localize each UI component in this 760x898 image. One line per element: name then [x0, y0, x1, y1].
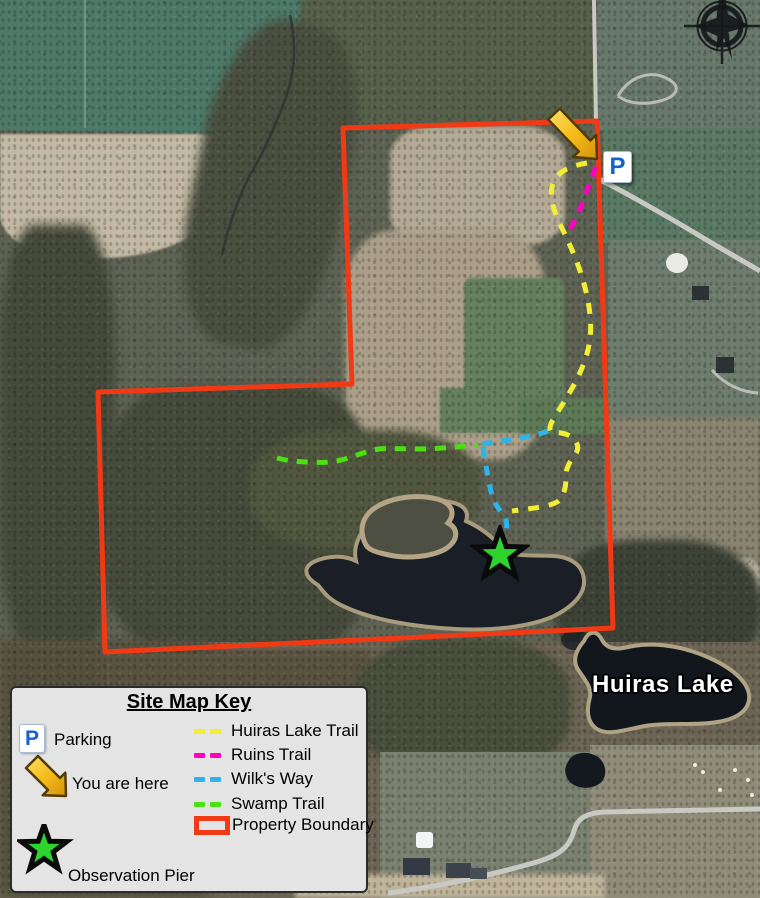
building: [470, 868, 487, 879]
creek-line: [222, 15, 294, 255]
trail-label: Wilk's Way: [231, 769, 313, 789]
legend-title: Site Map Key: [12, 691, 366, 714]
pool: [416, 832, 433, 848]
trail-wilks-way-upper: [478, 431, 548, 445]
boundary-label: Property Boundary: [232, 815, 374, 835]
parking-letter: P: [609, 153, 625, 181]
parking-icon: P: [603, 151, 632, 183]
arrow-shape: [548, 109, 597, 160]
dash: [194, 753, 205, 758]
boundary-swatch: [194, 816, 230, 835]
road-north: [594, 0, 596, 121]
legend-row-wilks-way: Wilk's Way: [194, 769, 313, 789]
farm-pond: [666, 253, 688, 273]
you-are-here-arrow-icon: [540, 104, 604, 166]
trail-label: Ruins Trail: [231, 745, 311, 765]
trail-swatch: [194, 777, 221, 782]
legend-panel: Site Map Key P Parking You are here Obse…: [10, 686, 368, 893]
dash: [210, 777, 221, 782]
lake-name-label: Huiras Lake: [592, 671, 734, 699]
building: [692, 286, 709, 300]
building: [446, 863, 471, 878]
dash: [194, 802, 205, 807]
legend-row-ruins-trail: Ruins Trail: [194, 745, 311, 765]
trail-label: Swamp Trail: [231, 794, 325, 814]
trail-swatch: [194, 753, 221, 758]
arrow-shape: [26, 756, 66, 796]
trail-swatch: [194, 729, 221, 734]
dash: [210, 729, 221, 734]
you-are-here-arrow-icon: [20, 752, 74, 806]
dash: [194, 777, 205, 782]
site-map: P Huiras Lake Site Map Key P Parking You…: [0, 0, 760, 898]
building: [716, 357, 734, 373]
legend-row-swamp-trail: Swamp Trail: [194, 794, 325, 814]
legend-parking-label: Parking: [54, 730, 112, 750]
trail-swamp: [277, 445, 478, 462]
trail-ruins: [570, 167, 596, 229]
legend-row-huiras-lake-trail: Huiras Lake Trail: [194, 721, 359, 741]
legend-observation-pier-label: Observation Pier: [68, 866, 195, 886]
trail-label: Huiras Lake Trail: [231, 721, 359, 741]
driveway-east: [712, 370, 758, 393]
farm-debris: [693, 763, 754, 797]
driveway-loop: [618, 75, 676, 104]
star-shape: [21, 825, 67, 868]
trail-huiras-lake: [512, 163, 591, 511]
legend-row-property-boundary: Property Boundary: [194, 815, 374, 835]
south-pond: [565, 753, 605, 788]
road-south: [388, 809, 760, 893]
parking-letter: P: [25, 727, 39, 751]
north-arrow-icon: [678, 0, 760, 76]
dash: [194, 729, 205, 734]
dash: [210, 753, 221, 758]
observation-pier-star-icon: [17, 824, 75, 878]
inner-pond-island: [362, 497, 456, 557]
building: [403, 858, 430, 875]
trail-swatch: [194, 802, 221, 807]
parking-icon: P: [19, 724, 45, 753]
observation-pier-star-icon: [470, 525, 530, 585]
star-shape: [475, 529, 524, 576]
legend-you-are-here-label: You are here: [72, 774, 169, 794]
dash: [210, 802, 221, 807]
